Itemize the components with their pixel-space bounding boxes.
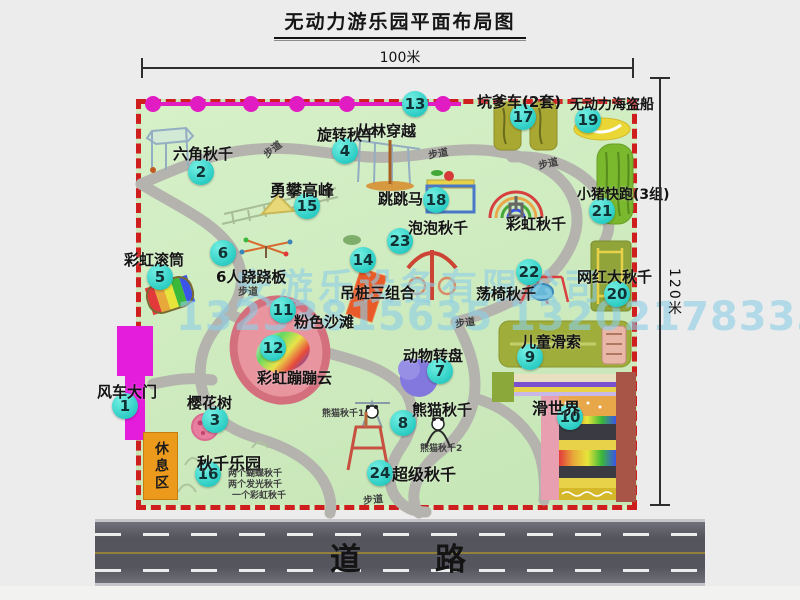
top-dimension-label: 100米 xyxy=(0,47,800,67)
page-title: 无动力游乐园平面布局图 xyxy=(274,7,525,39)
top-dimension-line xyxy=(141,67,634,69)
right-dimension-line xyxy=(659,77,661,506)
title-bar: 无动力游乐园平面布局图 xyxy=(0,7,800,39)
rest-area-box: 休息区 xyxy=(143,432,178,500)
road-label: 道 路 xyxy=(95,534,705,579)
right-dimension-label: 120米 xyxy=(664,268,684,317)
watermark-phone: 13233815635 13202178333 xyxy=(176,294,800,340)
rest-area-label: 休息区 xyxy=(151,440,171,492)
attraction-badge-1: 1 xyxy=(112,393,138,419)
playground-plan-image: 无动力游乐园平面布局图 100米 120米 xyxy=(0,0,800,600)
road: 道 路 xyxy=(95,519,705,586)
below-road-strip xyxy=(0,586,800,600)
